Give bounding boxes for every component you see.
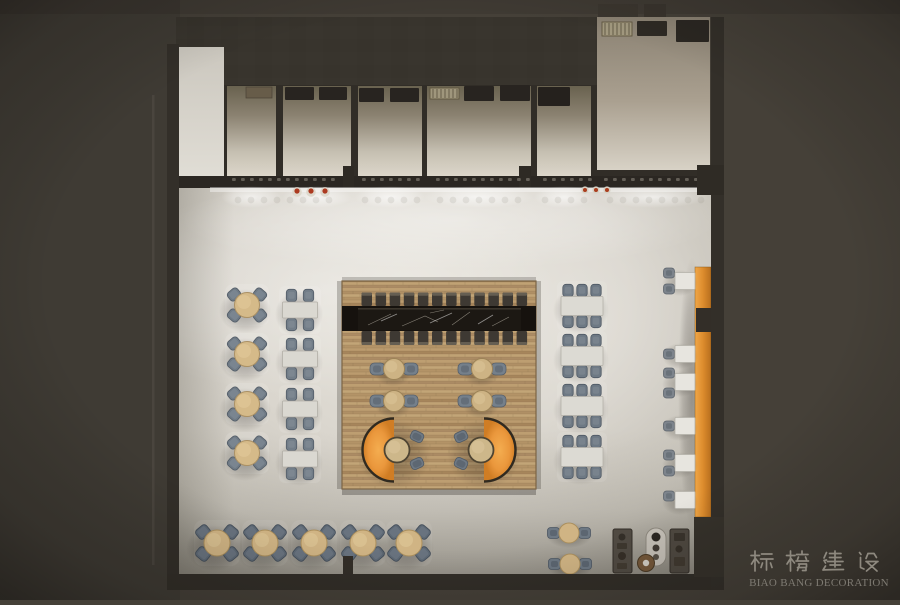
svg-text:BIAO BANG DECORATION: BIAO BANG DECORATION bbox=[749, 577, 889, 589]
